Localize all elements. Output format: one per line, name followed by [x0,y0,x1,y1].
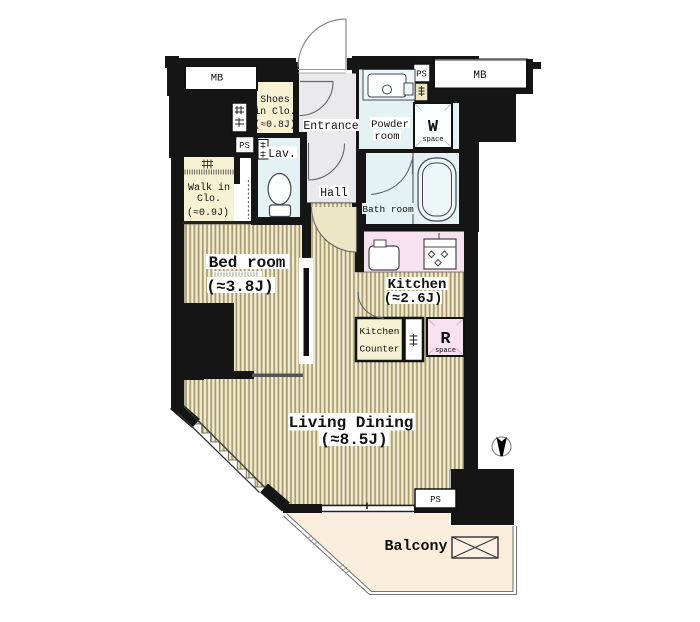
svg-text:PS: PS [239,141,250,151]
svg-text:(≈0.8J): (≈0.8J) [254,119,295,130]
svg-text:Hall: Hall [320,187,348,200]
svg-text:Bath room: Bath room [362,204,414,215]
svg-text:room: room [374,131,399,143]
svg-text:Powder: Powder [371,119,409,131]
svg-text:space: space [435,347,456,355]
svg-text:Living Dining: Living Dining [289,414,414,432]
svg-text:(≈3.8J): (≈3.8J) [206,278,273,296]
svg-text:(≈8.5J): (≈8.5J) [320,431,387,449]
svg-text:Shoes: Shoes [260,94,290,105]
svg-text:space: space [422,136,443,144]
svg-text:PS: PS [430,495,441,505]
svg-text:Clo.: Clo. [197,193,221,205]
svg-text:Entrance: Entrance [303,120,358,133]
svg-text:W: W [428,118,439,137]
svg-text:MB: MB [473,70,487,82]
svg-text:Lav.: Lav. [268,148,296,161]
svg-text:(≈0.9J): (≈0.9J) [187,207,229,219]
svg-text:Walk in: Walk in [188,182,230,194]
svg-text:PS: PS [416,70,427,80]
svg-text:MB: MB [211,73,224,85]
svg-text:Balcony: Balcony [384,538,447,555]
svg-text:(≈2.6J): (≈2.6J) [384,291,443,307]
svg-text:Kitchen: Kitchen [360,326,400,337]
svg-text:Bed room: Bed room [209,254,286,272]
svg-text:in Clo.: in Clo. [254,106,295,117]
svg-text:Counter: Counter [360,344,400,355]
